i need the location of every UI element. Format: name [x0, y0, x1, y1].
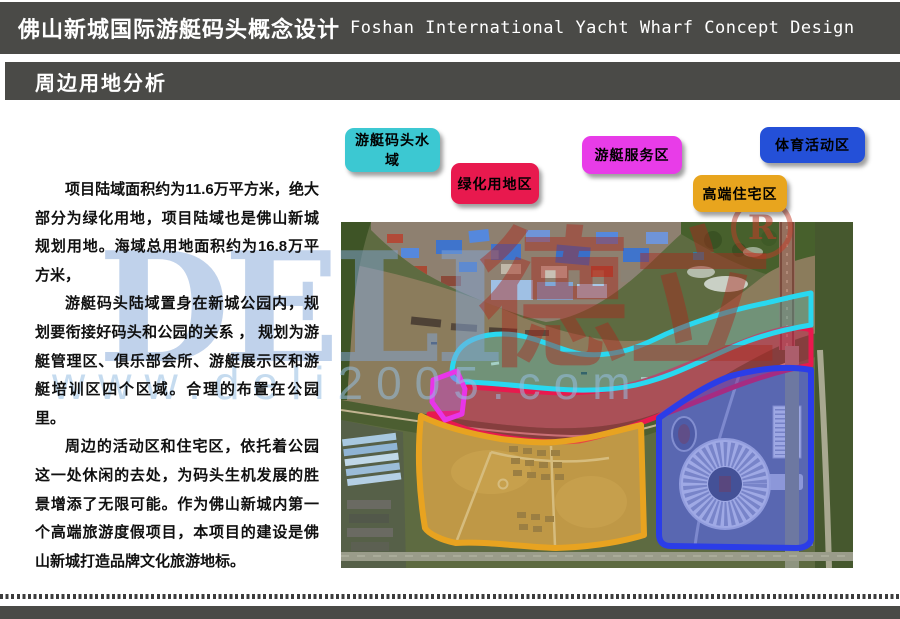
section-title: 周边用地分析 — [35, 67, 167, 96]
paragraph-2: 游艇码头陆域置身在新城公园内，规划要衔接好码头和公园的关系 ， 规划为游艇管理区… — [35, 290, 319, 433]
satellite-map — [341, 222, 853, 568]
map-zone-service — [432, 371, 465, 420]
legend-yacht-wharf-water[interactable]: 游艇码头水域 — [345, 128, 440, 172]
title-bar: 佛山新城国际游艇码头概念设计 Foshan International Yach… — [0, 2, 900, 54]
legend-sports[interactable]: 体育活动区 — [760, 127, 865, 163]
page-title-en: Foshan International Yacht Wharf Concept… — [350, 18, 855, 38]
paragraph-1: 项目陆域面积约为11.6万平方米，绝大部分为绿化用地，项目陆域也是佛山新城规划用… — [35, 176, 319, 290]
paragraph-3: 周边的活动区和住宅区，依托着公园这一处休闲的去处，为码头生机发展的胜景增添了无限… — [35, 433, 319, 576]
section-bar: 周边用地分析 — [5, 62, 900, 100]
legend-green-land[interactable]: 绿化用地区 — [451, 163, 539, 204]
satellite-map-image — [341, 222, 853, 568]
slide: 佛山新城国际游艇码头概念设计 Foshan International Yach… — [0, 0, 900, 619]
legend-residential[interactable]: 高端住宅区 — [693, 175, 787, 212]
bottom-dotted-line — [0, 594, 900, 599]
page-title: 佛山新城国际游艇码头概念设计 — [18, 12, 340, 44]
legend-yacht-service[interactable]: 游艇服务区 — [582, 136, 682, 174]
bottom-bar — [0, 606, 900, 619]
description-text: 项目陆域面积约为11.6万平方米，绝大部分为绿化用地，项目陆域也是佛山新城规划用… — [35, 176, 319, 576]
